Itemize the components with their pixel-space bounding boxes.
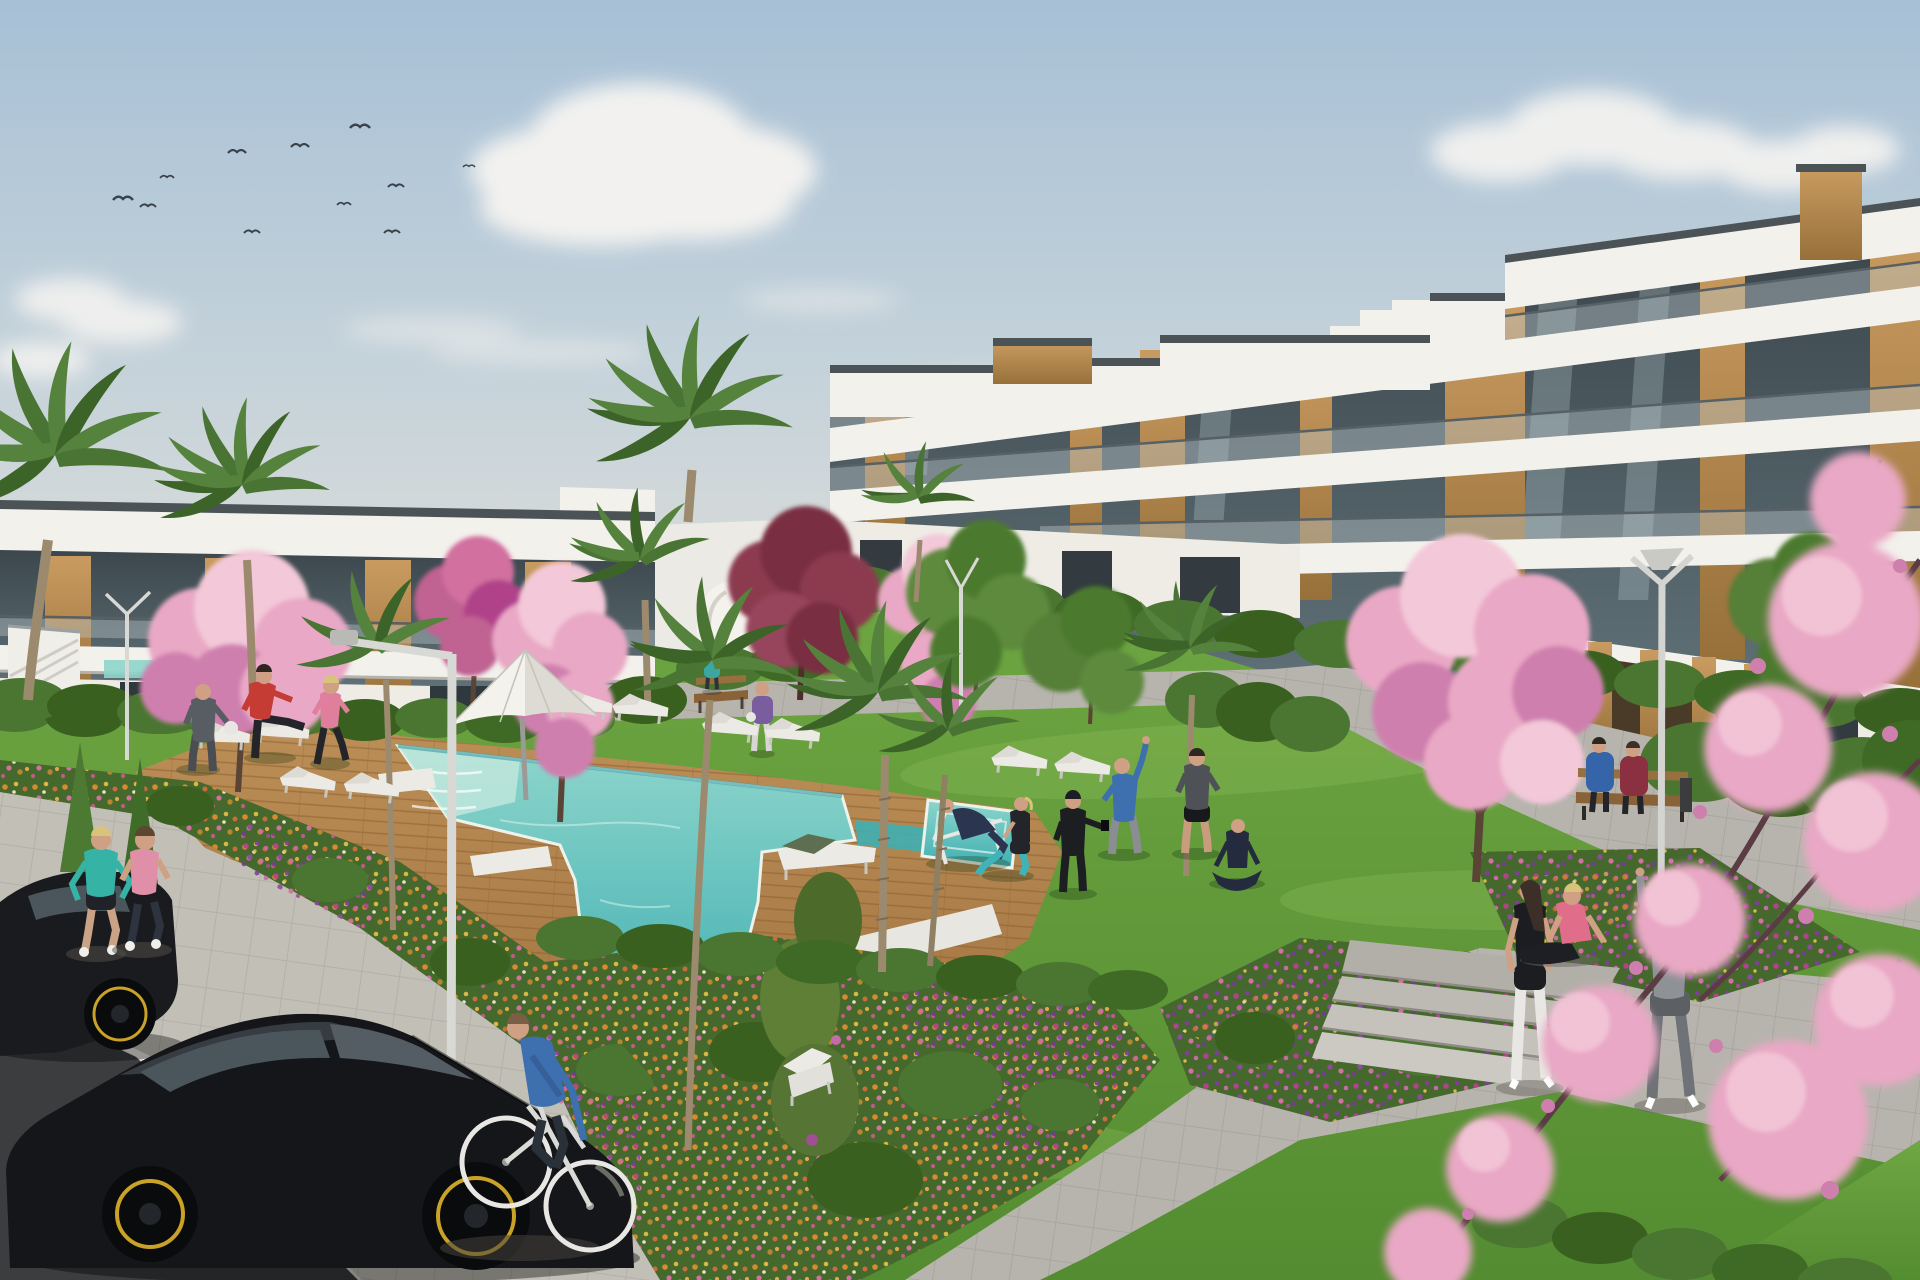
palm-trunk (645, 600, 648, 712)
palm-trunk (688, 470, 692, 522)
scene (0, 0, 1920, 1280)
litter-post (1680, 778, 1692, 812)
render-canvas (0, 0, 1920, 1280)
wood-tower (1800, 168, 1862, 260)
